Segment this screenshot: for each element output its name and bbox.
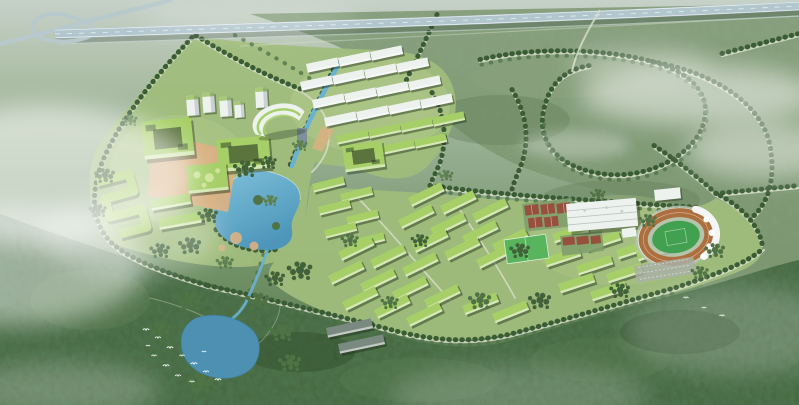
- lake-island: [272, 222, 280, 230]
- basketball-court: [576, 236, 589, 245]
- mist-patch: [40, 195, 220, 275]
- tower-building: [255, 87, 270, 110]
- tower-building: [219, 96, 234, 119]
- cloud-wisp: [520, 131, 630, 159]
- round-plaza: [230, 232, 242, 244]
- lake-island: [253, 195, 263, 205]
- tower-building: [202, 92, 217, 115]
- basketball-court: [562, 236, 575, 245]
- basketball-court: [590, 235, 601, 244]
- campus-aerial-rendering: [0, 0, 799, 405]
- tower-building: [186, 95, 201, 118]
- round-plaza: [219, 245, 226, 252]
- cloud: [570, 47, 710, 83]
- haze-top: [140, 0, 360, 36]
- round-plaza: [250, 242, 259, 251]
- rendering-canvas: [0, 0, 799, 405]
- courtyard-building: [342, 140, 387, 175]
- tower-building: [234, 101, 246, 119]
